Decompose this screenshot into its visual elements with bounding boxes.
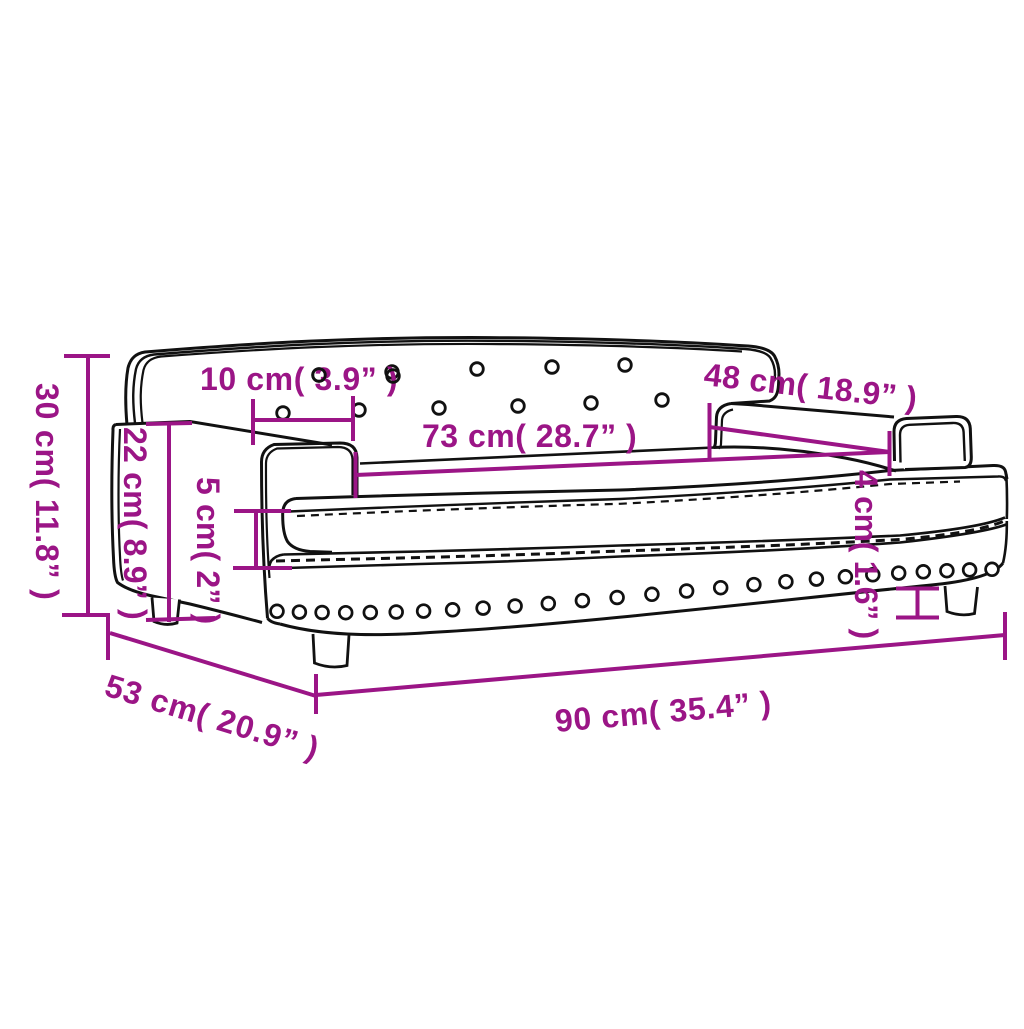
svg-text:4 cm( 1.6” ): 4 cm( 1.6” ) xyxy=(848,470,884,639)
svg-text:5 cm( 2” ): 5 cm( 2” ) xyxy=(190,477,226,624)
svg-text:73 cm( 28.7” ): 73 cm( 28.7” ) xyxy=(422,418,637,454)
svg-text:10 cm( 3.9” ): 10 cm( 3.9” ) xyxy=(200,361,398,397)
svg-text:22 cm( 8.9” ): 22 cm( 8.9” ) xyxy=(117,427,153,620)
svg-text:30 cm( 11.8” ): 30 cm( 11.8” ) xyxy=(29,383,65,601)
